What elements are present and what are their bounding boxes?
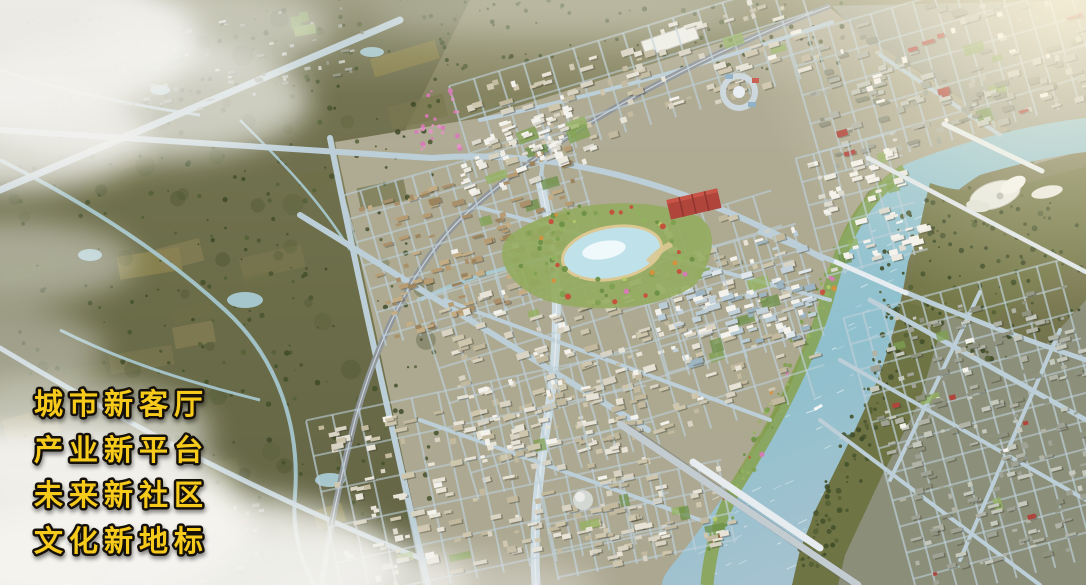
city-render-svg bbox=[0, 0, 1086, 585]
aerial-city-render: 城市新客厅 产业新平台 未来新社区 文化新地标 bbox=[0, 0, 1086, 585]
dome-building bbox=[573, 490, 593, 510]
